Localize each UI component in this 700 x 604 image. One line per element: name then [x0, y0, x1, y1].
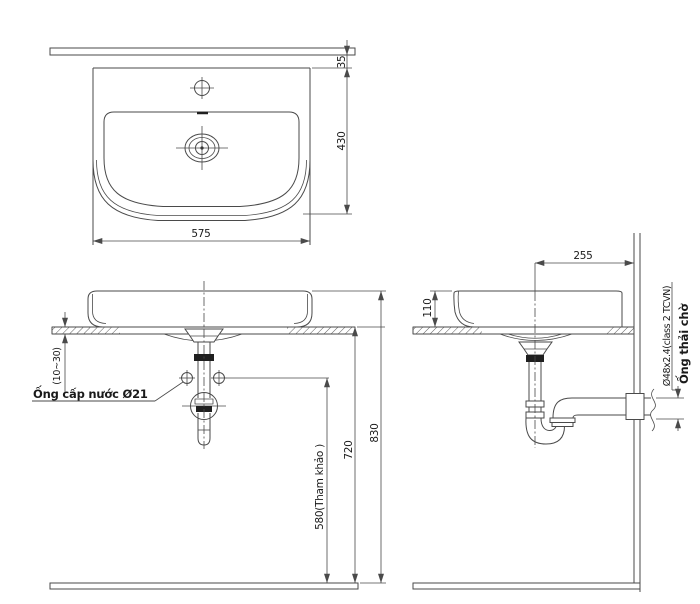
- dim-supply-height: 580(Tham khảo ): [314, 444, 326, 530]
- side-drain-flange: [519, 342, 552, 355]
- plan-rim-outer: [93, 160, 310, 221]
- label-waste-spec: Ø48x2.4(class 2 TCVN): [662, 286, 673, 386]
- dim-width: 575: [191, 228, 210, 240]
- supply-point-right-icon: [211, 370, 227, 386]
- dim-drain-to-wall: 255: [573, 250, 592, 262]
- dim-wall-gap: 35: [336, 56, 348, 69]
- front-view: Ống cấp nước Ø21 (10~30) 580(Tham khảo )…: [32, 281, 386, 589]
- drain-hole-icon: [176, 126, 228, 170]
- dim-counter-thickness: (10~30): [52, 347, 63, 384]
- front-sink-body: [88, 291, 312, 327]
- label-waste-outlet: Ống thải chờ: [674, 303, 691, 384]
- plan-wall-bar: [50, 48, 355, 55]
- label-supply-pipe: Ống cấp nước Ø21: [33, 384, 148, 401]
- dim-basin-height: 110: [422, 298, 434, 317]
- faucet-hole-icon: [190, 77, 214, 99]
- side-wall-coupling: [626, 394, 644, 420]
- side-view: 255 110 Ø48x2.4(class 2 TCVN) Ống thải c…: [413, 233, 691, 592]
- plan-view: 35 430 575: [50, 40, 355, 245]
- plan-rim-inner: [97, 160, 307, 216]
- technical-drawing-page: 35 430 575: [0, 0, 700, 604]
- pipe-break-symbol: [651, 389, 656, 431]
- dim-total-height: 830: [369, 423, 381, 442]
- supply-point-left-icon: [179, 370, 195, 386]
- dim-counter-height: 720: [343, 440, 355, 459]
- plan-basin: [104, 112, 299, 207]
- side-sink-body: [454, 291, 622, 327]
- dim-depth: 430: [336, 131, 348, 150]
- front-floor-bar: [50, 583, 358, 589]
- side-floor-bar: [413, 583, 640, 589]
- drawing-canvas: 35 430 575: [0, 0, 700, 604]
